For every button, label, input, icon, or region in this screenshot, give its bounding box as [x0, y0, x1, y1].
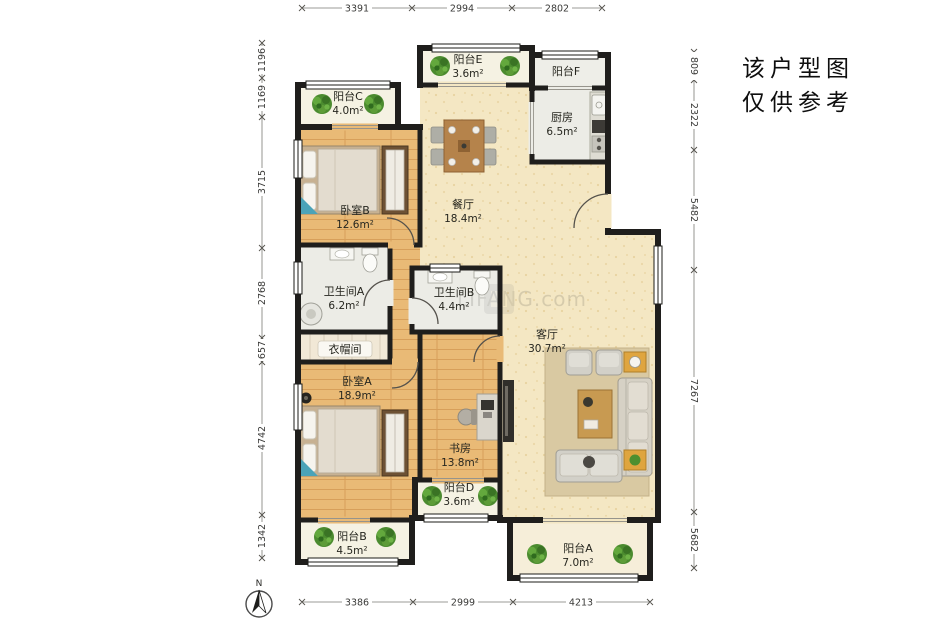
dimension-label: 2802: [545, 4, 569, 15]
room-label-balcony-c: 阳台C: [333, 89, 363, 103]
dimension-label: 7267: [688, 379, 699, 403]
dimension-label: 4213: [569, 598, 593, 609]
room-area-dining: 18.4m²: [444, 213, 482, 225]
tv-cabinet-icon: [503, 380, 514, 442]
room-label-living: 客厅: [536, 327, 558, 341]
room-area-bath-b: 4.4m²: [438, 301, 469, 313]
floorplan-canvas: LIFANG.com: [0, 0, 948, 624]
room-label-balcony-a: 阳台A: [563, 541, 593, 555]
room-area-bedroom-b: 12.6m²: [336, 219, 374, 231]
plant-icon: [500, 56, 520, 76]
compass-north-label: N: [256, 579, 263, 589]
disclaimer-line2: 仅供参考: [742, 90, 854, 116]
window-icon: [430, 264, 460, 272]
sliding-door-icon: [529, 102, 536, 154]
window-icon: [294, 384, 302, 430]
window-icon: [542, 51, 598, 59]
room-label-balcony-d: 阳台D: [444, 480, 474, 494]
dimension-label: 657: [257, 341, 268, 359]
room-area-bedroom-a: 18.9m²: [338, 390, 376, 402]
window-icon: [308, 558, 398, 566]
dimension-label: 3715: [257, 170, 268, 194]
window-icon: [654, 246, 662, 304]
sliding-door-icon: [332, 124, 378, 131]
room-label-balcony-f: 阳台F: [552, 64, 580, 78]
dimension-label: 4742: [257, 426, 268, 450]
dimension-label: 2999: [451, 598, 475, 609]
room-label-study: 书房: [449, 442, 471, 455]
sliding-door-icon: [438, 82, 506, 89]
plant-icon: [312, 94, 332, 114]
sliding-door-icon: [318, 517, 370, 524]
dimension-label: 3391: [345, 4, 369, 15]
plant-icon: [422, 486, 442, 506]
window-icon: [294, 140, 302, 178]
room-label-dining: 餐厅: [452, 197, 474, 211]
plant-icon: [613, 544, 633, 564]
room-area-balcony-d: 3.6m²: [443, 496, 474, 508]
sliding-door-icon: [543, 517, 627, 524]
plant-icon: [527, 544, 547, 564]
sofa-set-icon: [545, 348, 652, 496]
window-icon: [294, 262, 302, 294]
wardrobe-icon: [382, 410, 408, 476]
room-area-bath-a: 6.2m²: [328, 300, 359, 312]
room-label-cloakroom: 衣帽间: [329, 342, 362, 356]
room-label-kitchen: 厨房: [551, 111, 573, 124]
plant-icon: [314, 527, 334, 547]
room-area-balcony-c: 4.0m²: [332, 105, 363, 117]
dimension-label: 809: [688, 57, 699, 75]
sliding-door-icon: [548, 85, 592, 92]
room-area-study: 13.8m²: [441, 457, 479, 469]
window-icon: [432, 44, 520, 52]
window-icon: [520, 574, 638, 582]
window-icon: [424, 514, 488, 522]
room-label-bedroom-b: 卧室B: [340, 203, 370, 217]
plant-icon: [478, 486, 498, 506]
dimension-label: 2994: [450, 4, 474, 15]
room-area-balcony-b: 4.5m²: [336, 545, 367, 557]
dimension-label: 1169: [257, 85, 268, 109]
room-area-balcony-a: 7.0m²: [562, 557, 593, 569]
plant-icon: [430, 56, 450, 76]
room-label-balcony-e: 阳台E: [454, 52, 483, 66]
dimension-label: 3386: [345, 598, 369, 609]
plant-icon: [364, 94, 384, 114]
room-area-kitchen: 6.5m²: [546, 126, 577, 138]
disclaimer-line1: 该户型图: [742, 56, 854, 82]
dimension-label: 5682: [688, 528, 699, 552]
compass-icon: N: [246, 579, 272, 617]
room-area-living: 30.7m²: [528, 343, 566, 355]
dimension-label: 2768: [257, 281, 268, 305]
wardrobe-icon: [382, 146, 408, 214]
dimension-label: 1342: [257, 524, 268, 548]
dimension-label: 2322: [688, 103, 699, 127]
floorplan-svg: LIFANG.com: [0, 0, 948, 624]
dimension-label: 5482: [688, 198, 699, 222]
room-area-balcony-e: 3.6m²: [452, 68, 483, 80]
room-label-bedroom-a: 卧室A: [342, 374, 372, 388]
window-icon: [306, 81, 390, 89]
disclaimer: 该户型图 仅供参考: [742, 56, 854, 116]
plant-icon: [376, 527, 396, 547]
room-label-bath-b: 卫生间B: [434, 285, 475, 299]
dimension-label: 1196: [257, 48, 268, 72]
room-label-balcony-b: 阳台B: [337, 529, 367, 543]
room-label-bath-a: 卫生间A: [324, 284, 365, 298]
